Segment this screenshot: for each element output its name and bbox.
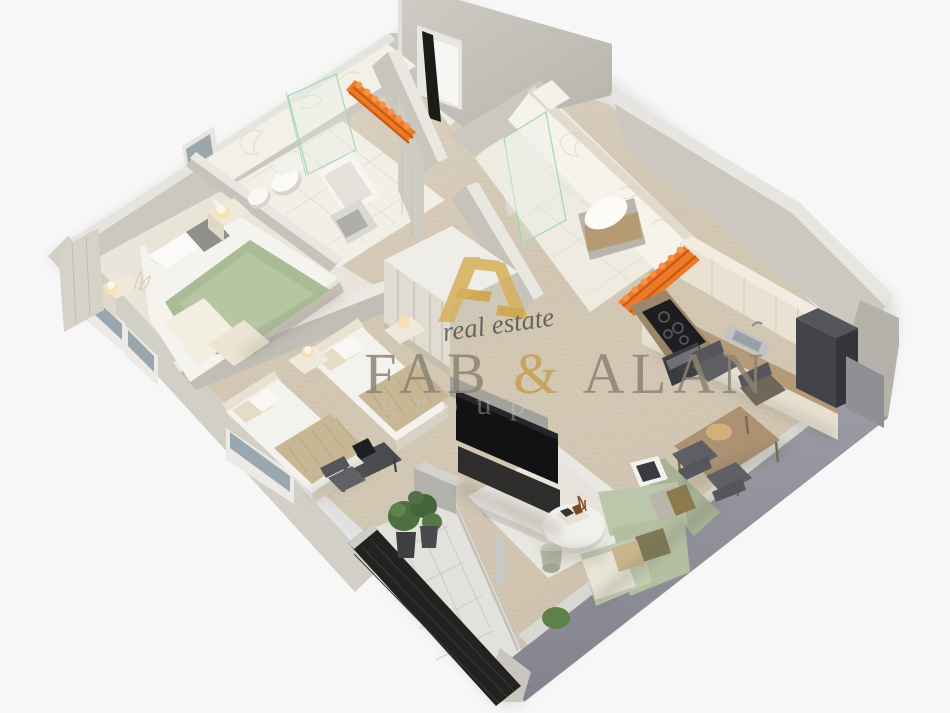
svg-text:group: group (381, 386, 543, 421)
